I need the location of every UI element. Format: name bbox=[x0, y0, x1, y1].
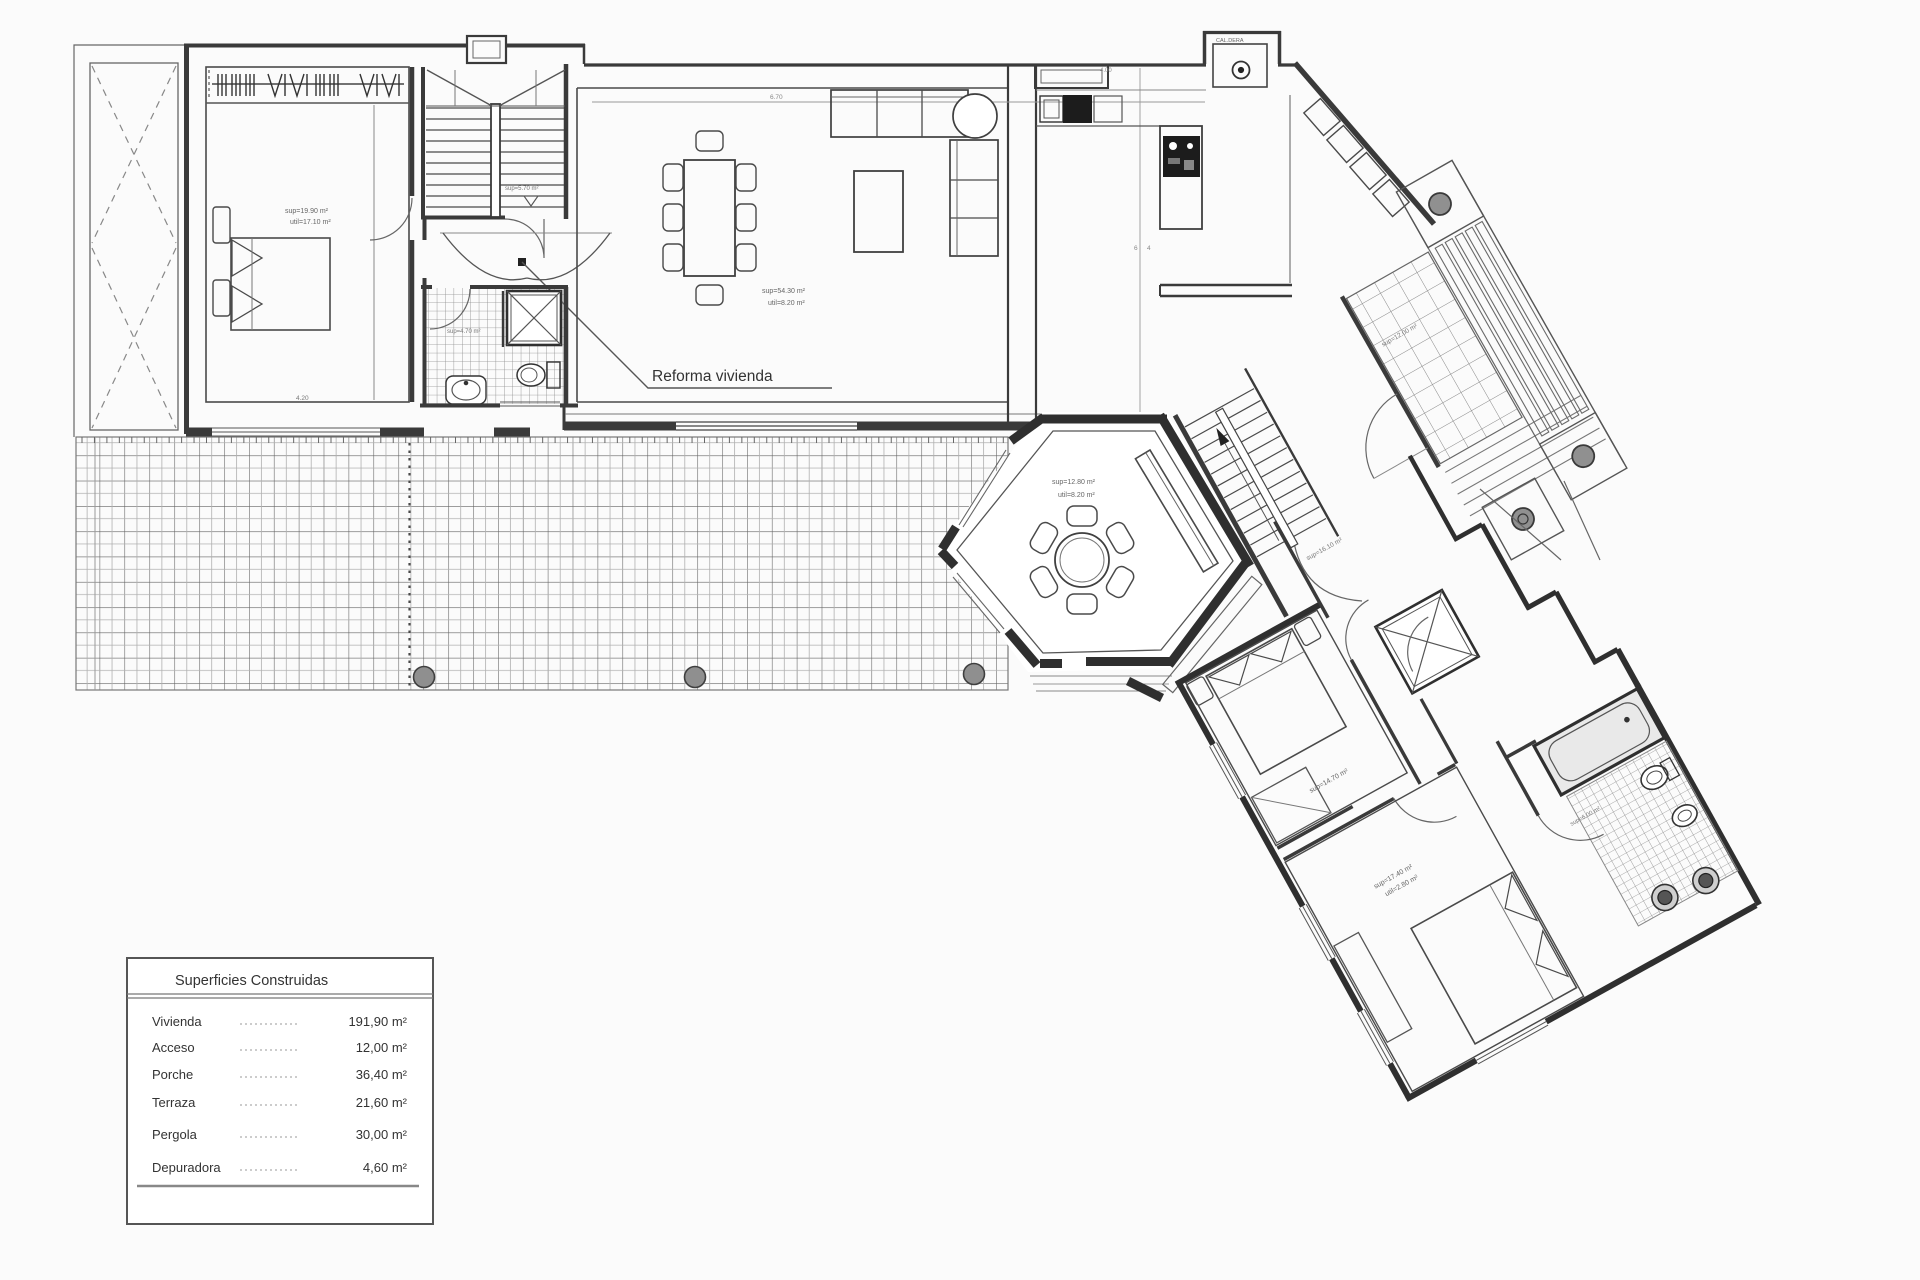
svg-text:Vivienda: Vivienda bbox=[152, 1014, 202, 1029]
svg-text:21,60 m²: 21,60 m² bbox=[356, 1095, 408, 1110]
svg-text:CAL.DERA: CAL.DERA bbox=[1216, 38, 1244, 44]
svg-text:Terraza: Terraza bbox=[152, 1095, 196, 1110]
svg-text:util=8.20 m²: util=8.20 m² bbox=[768, 300, 805, 307]
svg-text:4,60 m²: 4,60 m² bbox=[363, 1160, 408, 1175]
svg-text:sup=5.70 m²: sup=5.70 m² bbox=[505, 186, 539, 192]
svg-text:Acceso: Acceso bbox=[152, 1040, 195, 1055]
svg-text:36,40 m²: 36,40 m² bbox=[356, 1067, 408, 1082]
svg-text:Porche: Porche bbox=[152, 1067, 193, 1082]
svg-text:Depuradora: Depuradora bbox=[152, 1160, 221, 1175]
svg-text:sup=12.80 m²: sup=12.80 m² bbox=[1052, 479, 1096, 486]
svg-text:Pergola: Pergola bbox=[152, 1127, 198, 1142]
svg-text:30,00 m²: 30,00 m² bbox=[356, 1127, 408, 1142]
svg-text:sup=19.90 m²: sup=19.90 m² bbox=[285, 208, 329, 215]
svg-text:sup=16.10 m²: sup=16.10 m² bbox=[1305, 536, 1344, 562]
svg-text:4.00: 4.00 bbox=[1100, 68, 1112, 74]
svg-text:sup=4.70 m²: sup=4.70 m² bbox=[447, 329, 481, 335]
svg-text:191,90 m²: 191,90 m² bbox=[348, 1014, 407, 1029]
svg-text:12,00 m²: 12,00 m² bbox=[356, 1040, 408, 1055]
svg-text:4: 4 bbox=[1147, 245, 1151, 252]
svg-text:6: 6 bbox=[1134, 245, 1138, 252]
svg-text:Reforma vivienda: Reforma vivienda bbox=[652, 368, 773, 385]
svg-text:Superficies Construidas: Superficies Construidas bbox=[175, 973, 328, 989]
svg-text:util=17.10 m²: util=17.10 m² bbox=[290, 219, 331, 226]
svg-text:4.20: 4.20 bbox=[296, 395, 309, 402]
svg-text:util=8.20 m²: util=8.20 m² bbox=[1058, 492, 1095, 499]
svg-text:sup=54.30 m²: sup=54.30 m² bbox=[762, 288, 806, 295]
svg-text:6.70: 6.70 bbox=[770, 94, 783, 101]
svg-text:sup=14.70 m²: sup=14.70 m² bbox=[1308, 768, 1350, 795]
